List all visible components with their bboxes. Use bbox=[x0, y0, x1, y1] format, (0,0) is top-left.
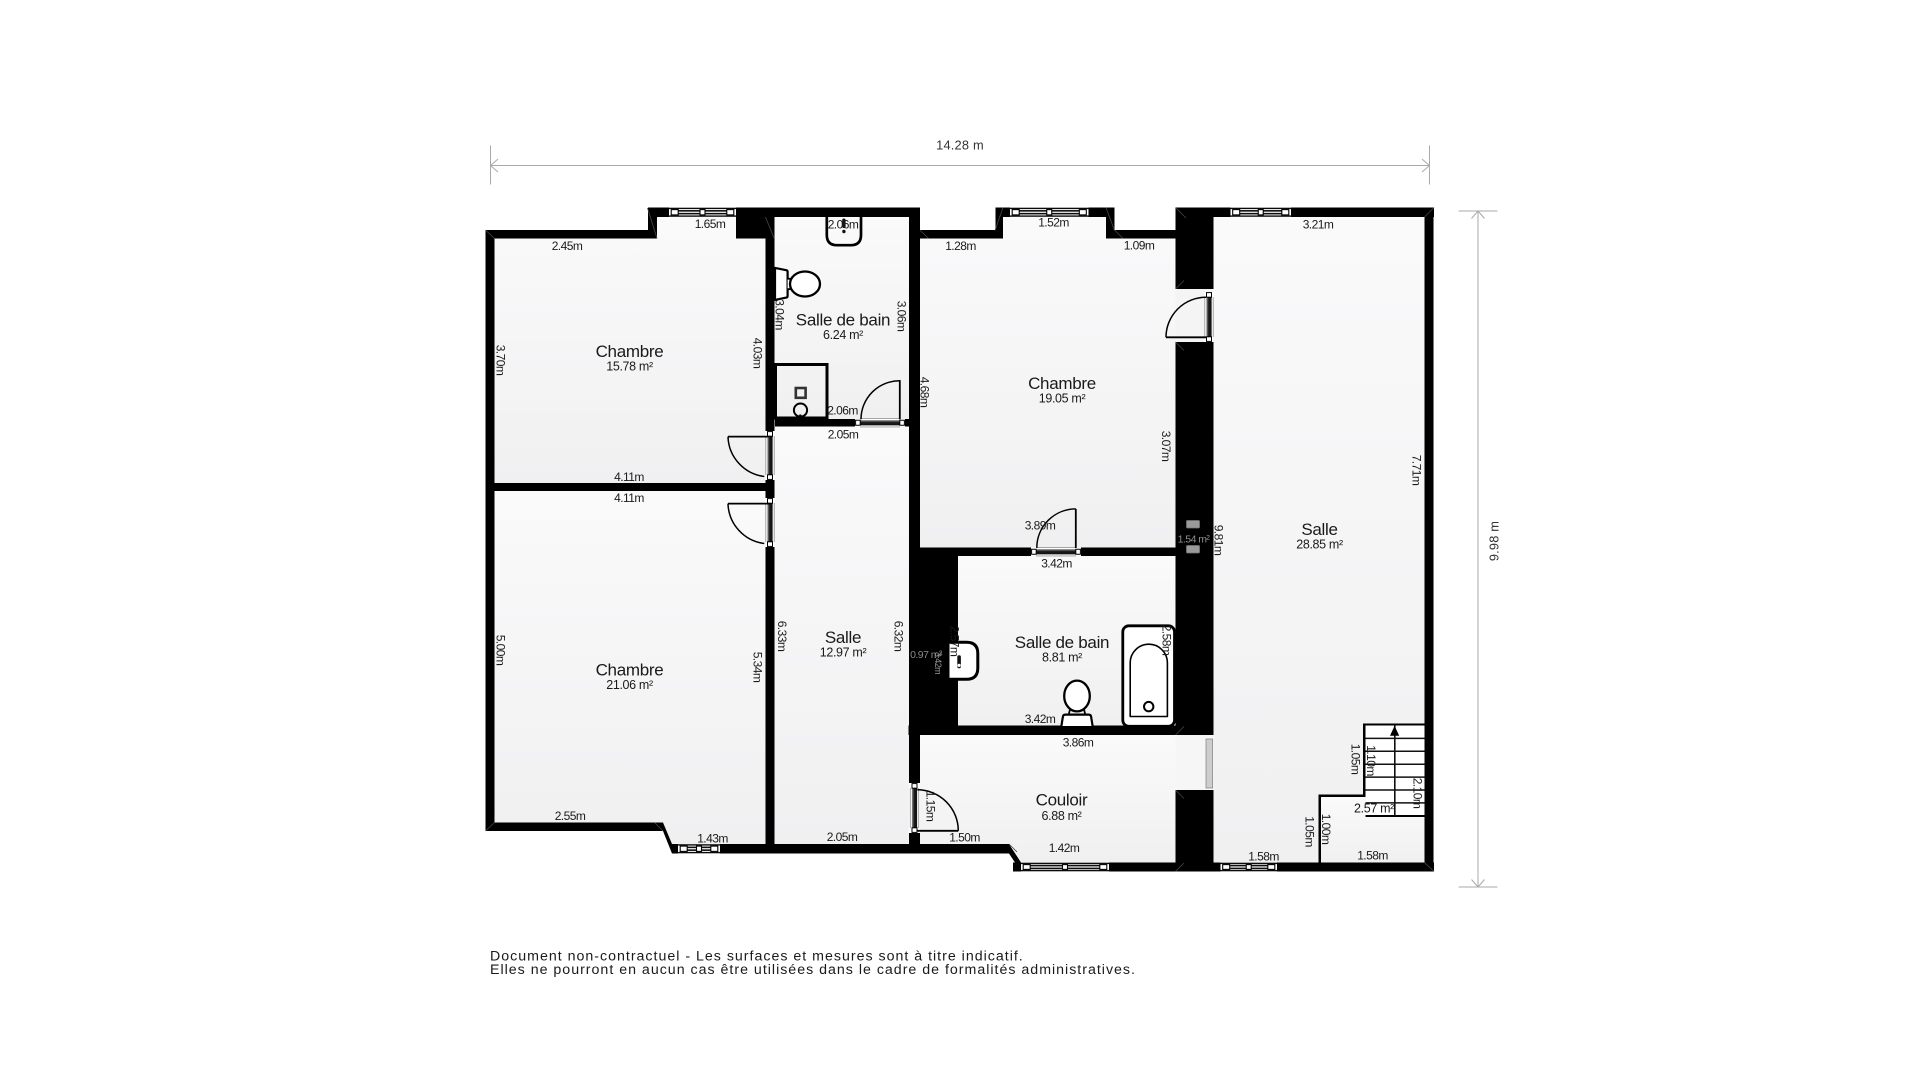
svg-text:3.89m: 3.89m bbox=[1025, 519, 1056, 533]
svg-text:2.58m: 2.58m bbox=[1160, 625, 1174, 656]
svg-text:3.42m: 3.42m bbox=[1025, 712, 1056, 726]
svg-text:2.45m: 2.45m bbox=[552, 239, 583, 253]
svg-text:1.58m: 1.58m bbox=[1248, 850, 1279, 864]
svg-text:Chambre: Chambre bbox=[1028, 374, 1096, 393]
svg-text:9.98 m: 9.98 m bbox=[1487, 521, 1502, 561]
svg-text:12.97 m²: 12.97 m² bbox=[820, 646, 867, 660]
svg-text:5.00m: 5.00m bbox=[494, 635, 508, 666]
svg-text:3.21m: 3.21m bbox=[1303, 218, 1334, 232]
svg-text:1.10m: 1.10m bbox=[1364, 745, 1378, 776]
svg-text:3.42m: 3.42m bbox=[1041, 557, 1072, 571]
svg-text:1.54 m²: 1.54 m² bbox=[1178, 534, 1211, 546]
svg-text:Salle: Salle bbox=[825, 628, 861, 647]
svg-text:3.04m: 3.04m bbox=[773, 299, 787, 330]
svg-text:Salle de bain: Salle de bain bbox=[796, 311, 890, 330]
svg-text:2.57m: 2.57m bbox=[948, 626, 962, 657]
svg-text:2.55m: 2.55m bbox=[555, 809, 586, 823]
svg-text:3.70m: 3.70m bbox=[494, 345, 508, 376]
svg-text:2.06m: 2.06m bbox=[828, 218, 859, 232]
svg-text:Elles ne pourront en aucun cas: Elles ne pourront en aucun cas être util… bbox=[490, 962, 1136, 978]
svg-text:1.58m: 1.58m bbox=[1357, 849, 1388, 863]
svg-text:2.10m: 2.10m bbox=[1411, 778, 1425, 809]
svg-text:1.65m: 1.65m bbox=[695, 217, 726, 231]
svg-text:1.05m: 1.05m bbox=[1303, 816, 1317, 847]
svg-text:1.43m: 1.43m bbox=[697, 832, 728, 846]
svg-text:15.78 m²: 15.78 m² bbox=[606, 360, 653, 374]
svg-text:19.05 m²: 19.05 m² bbox=[1039, 392, 1086, 406]
svg-text:9.81m: 9.81m bbox=[1212, 525, 1226, 556]
svg-text:Salle de bain: Salle de bain bbox=[1015, 633, 1109, 652]
svg-text:1.15m: 1.15m bbox=[924, 791, 938, 822]
svg-text:21.06 m²: 21.06 m² bbox=[606, 678, 653, 692]
svg-text:1.50m: 1.50m bbox=[949, 831, 980, 845]
svg-text:28.85 m²: 28.85 m² bbox=[1296, 538, 1343, 552]
svg-text:3.86m: 3.86m bbox=[1063, 736, 1094, 750]
svg-text:14.28 m: 14.28 m bbox=[936, 138, 984, 153]
svg-text:Couloir: Couloir bbox=[1036, 791, 1088, 810]
svg-text:5.34m: 5.34m bbox=[751, 652, 765, 683]
svg-text:2.06m: 2.06m bbox=[827, 404, 858, 418]
svg-text:Salle: Salle bbox=[1301, 520, 1337, 539]
svg-text:4.68m: 4.68m bbox=[918, 377, 932, 408]
svg-text:2.57 m²: 2.57 m² bbox=[1354, 802, 1394, 816]
svg-text:3.07m: 3.07m bbox=[1159, 431, 1173, 462]
svg-text:2.05m: 2.05m bbox=[827, 830, 858, 844]
svg-text:1.09m: 1.09m bbox=[1124, 239, 1155, 253]
svg-text:6.88 m²: 6.88 m² bbox=[1042, 809, 1082, 823]
svg-text:Chambre: Chambre bbox=[596, 342, 664, 361]
svg-text:4.11m: 4.11m bbox=[614, 470, 644, 484]
svg-text:Chambre: Chambre bbox=[596, 661, 664, 680]
svg-text:8.81 m²: 8.81 m² bbox=[1042, 651, 1082, 665]
svg-text:1.28m: 1.28m bbox=[945, 239, 976, 253]
svg-text:4.03m: 4.03m bbox=[751, 338, 765, 369]
svg-text:7.71m: 7.71m bbox=[1410, 455, 1424, 486]
svg-text:6.32m: 6.32m bbox=[892, 621, 906, 652]
svg-text:4.11m: 4.11m bbox=[614, 491, 644, 505]
svg-text:6.33m: 6.33m bbox=[775, 621, 789, 652]
svg-text:1.52m: 1.52m bbox=[1038, 216, 1069, 230]
svg-text:1.05m: 1.05m bbox=[1349, 744, 1363, 775]
svg-text:2.05m: 2.05m bbox=[828, 428, 859, 442]
svg-text:1.42m: 1.42m bbox=[1049, 841, 1080, 855]
svg-text:6.24 m²: 6.24 m² bbox=[823, 328, 863, 342]
svg-text:1.00m: 1.00m bbox=[1319, 814, 1333, 845]
svg-text:3.42m: 3.42m bbox=[933, 652, 943, 674]
svg-text:3.06m: 3.06m bbox=[895, 301, 909, 332]
